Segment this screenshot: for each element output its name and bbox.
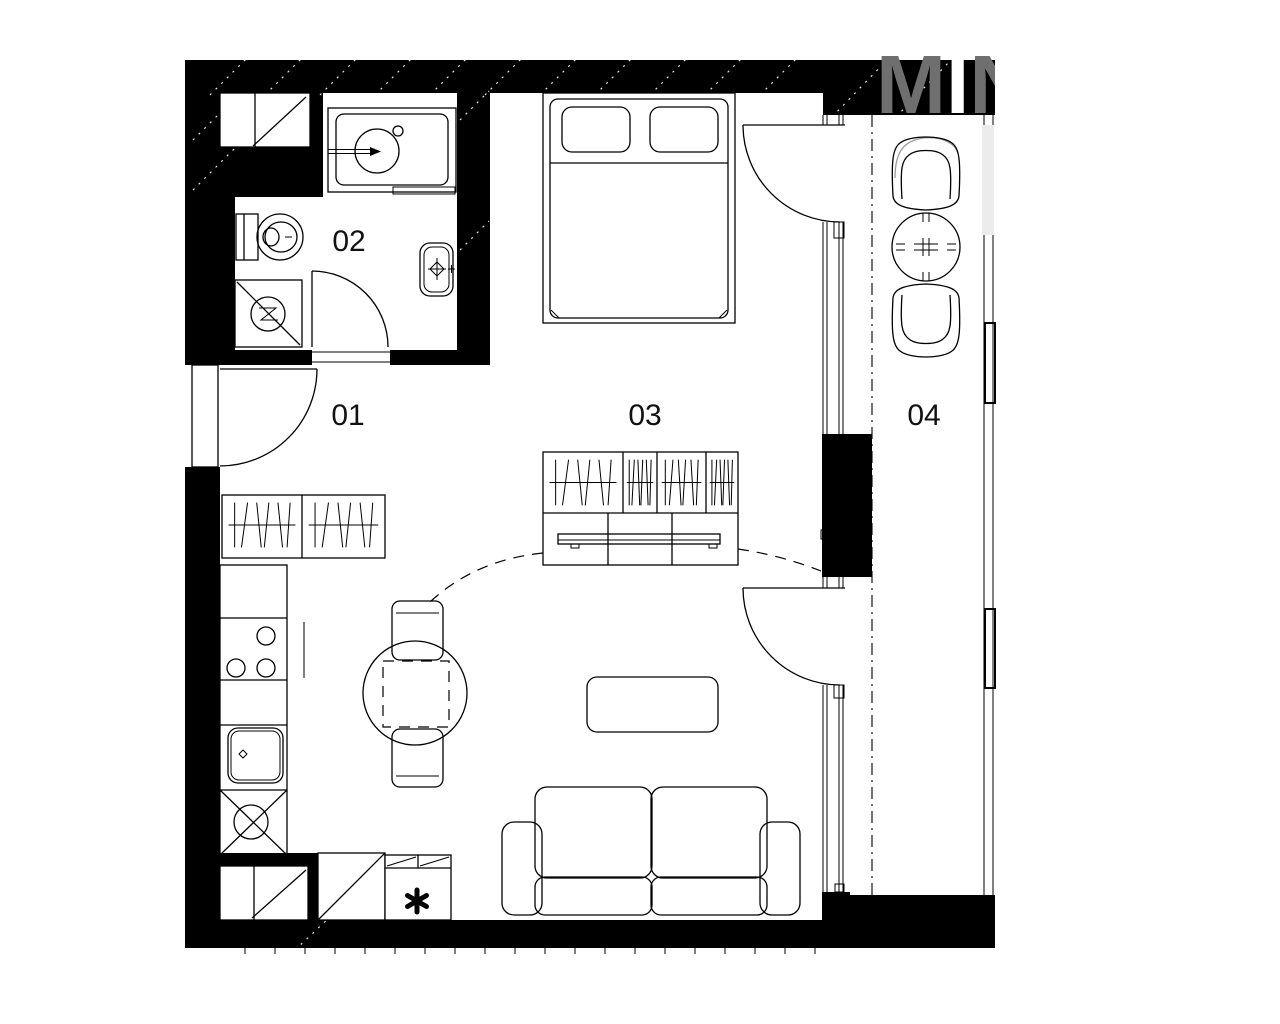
floor-plan-page: 02 01 [0, 0, 1280, 1024]
balcony-door-top [743, 125, 845, 238]
floor-plan-drawing: 02 01 [0, 0, 1280, 1024]
entrance-door [192, 365, 317, 467]
dining-table-leaf-dashed [383, 661, 449, 727]
room-label-04: 04 [907, 399, 940, 432]
balcony-chair-bottom [892, 284, 959, 357]
shower [235, 280, 302, 347]
service-shaft-bottom [220, 866, 308, 920]
double-bed [543, 93, 735, 323]
room-label-03: 03 [628, 399, 661, 432]
kitchen-sink [228, 728, 283, 783]
watermark-faint-bar [982, 125, 994, 235]
glass-wall-pier [822, 434, 872, 577]
storage-cabinet-asterisk [385, 855, 451, 920]
dining-set [363, 601, 467, 787]
hall-wardrobe [222, 495, 385, 558]
walls [185, 58, 995, 954]
sofa-armrest [502, 822, 542, 915]
washing-machine-sink-unit [328, 108, 456, 194]
tv [558, 534, 720, 548]
balcony-door-bottom [743, 588, 845, 698]
dining-chair-top [392, 601, 443, 660]
balcony: 04 [892, 115, 995, 895]
toilet [236, 214, 303, 260]
sofa [502, 787, 800, 915]
room-label-02: 02 [332, 225, 365, 258]
base-cabinet-x [220, 790, 287, 855]
pillow [650, 107, 718, 152]
balcony-table [892, 213, 960, 281]
sofa-armrest [760, 822, 800, 915]
wardrobe-with-tv [543, 452, 738, 565]
entrance-hall: 01 [192, 365, 385, 558]
room-label-01: 01 [331, 399, 364, 432]
bathroom-door [312, 271, 390, 362]
svg-text:MIN: MIN [876, 37, 1030, 131]
washbasin [420, 243, 455, 296]
wall-tick-marks [245, 948, 815, 954]
watermark-letter-i: I [946, 37, 969, 131]
watermark-letter-m: M [876, 37, 946, 131]
pillow [562, 107, 630, 152]
watermark-letter-n: N [969, 37, 1030, 131]
partition-dashed-line-right [738, 549, 821, 571]
partition-dashed-line-left [430, 553, 543, 602]
cooktop [227, 627, 275, 677]
balcony-chair-top [892, 137, 959, 210]
service-shaft-top [220, 93, 310, 147]
kitchen-counter [220, 565, 304, 855]
dining-chair-bottom [392, 729, 443, 787]
storage-cabinet-diagonal [318, 853, 385, 920]
coffee-table [587, 677, 718, 732]
